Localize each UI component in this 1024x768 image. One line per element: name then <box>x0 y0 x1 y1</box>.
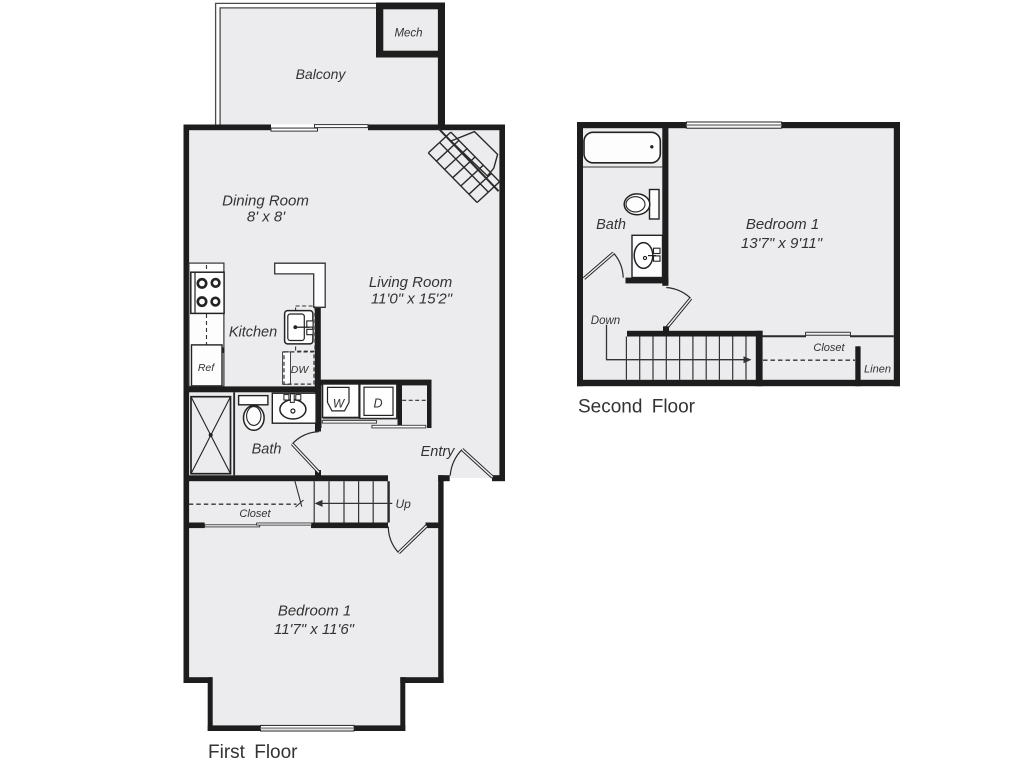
svg-text:11'0" x 15'2": 11'0" x 15'2" <box>371 291 453 308</box>
svg-text:D: D <box>373 397 382 411</box>
svg-text:Balcony: Balcony <box>296 66 347 82</box>
svg-text:8' x 8': 8' x 8' <box>247 209 286 226</box>
svg-text:Bath: Bath <box>596 217 626 233</box>
svg-text:Closet: Closet <box>813 342 845 354</box>
svg-text:Up: Up <box>396 497 412 511</box>
svg-text:Dining Room: Dining Room <box>222 193 309 210</box>
svg-text:DW: DW <box>291 364 310 376</box>
svg-text:Ref: Ref <box>198 362 215 374</box>
svg-text:Mech: Mech <box>394 28 422 40</box>
svg-text:W: W <box>333 397 346 411</box>
svg-text:Closet: Closet <box>239 508 271 520</box>
svg-text:First Floor: First Floor <box>208 742 298 763</box>
svg-text:11'7" x 11'6": 11'7" x 11'6" <box>274 621 355 638</box>
svg-text:Second Floor: Second Floor <box>578 397 696 418</box>
svg-text:Kitchen: Kitchen <box>229 325 277 341</box>
svg-text:Down: Down <box>591 315 620 327</box>
svg-text:Living Room: Living Room <box>369 274 452 291</box>
svg-text:Bedroom 1: Bedroom 1 <box>746 216 819 233</box>
svg-text:Bath: Bath <box>252 442 282 458</box>
svg-text:Bedroom 1: Bedroom 1 <box>278 603 351 620</box>
svg-text:13'7" x 9'11": 13'7" x 9'11" <box>741 235 823 252</box>
svg-text:Linen: Linen <box>864 364 891 376</box>
svg-text:Entry: Entry <box>421 444 456 460</box>
